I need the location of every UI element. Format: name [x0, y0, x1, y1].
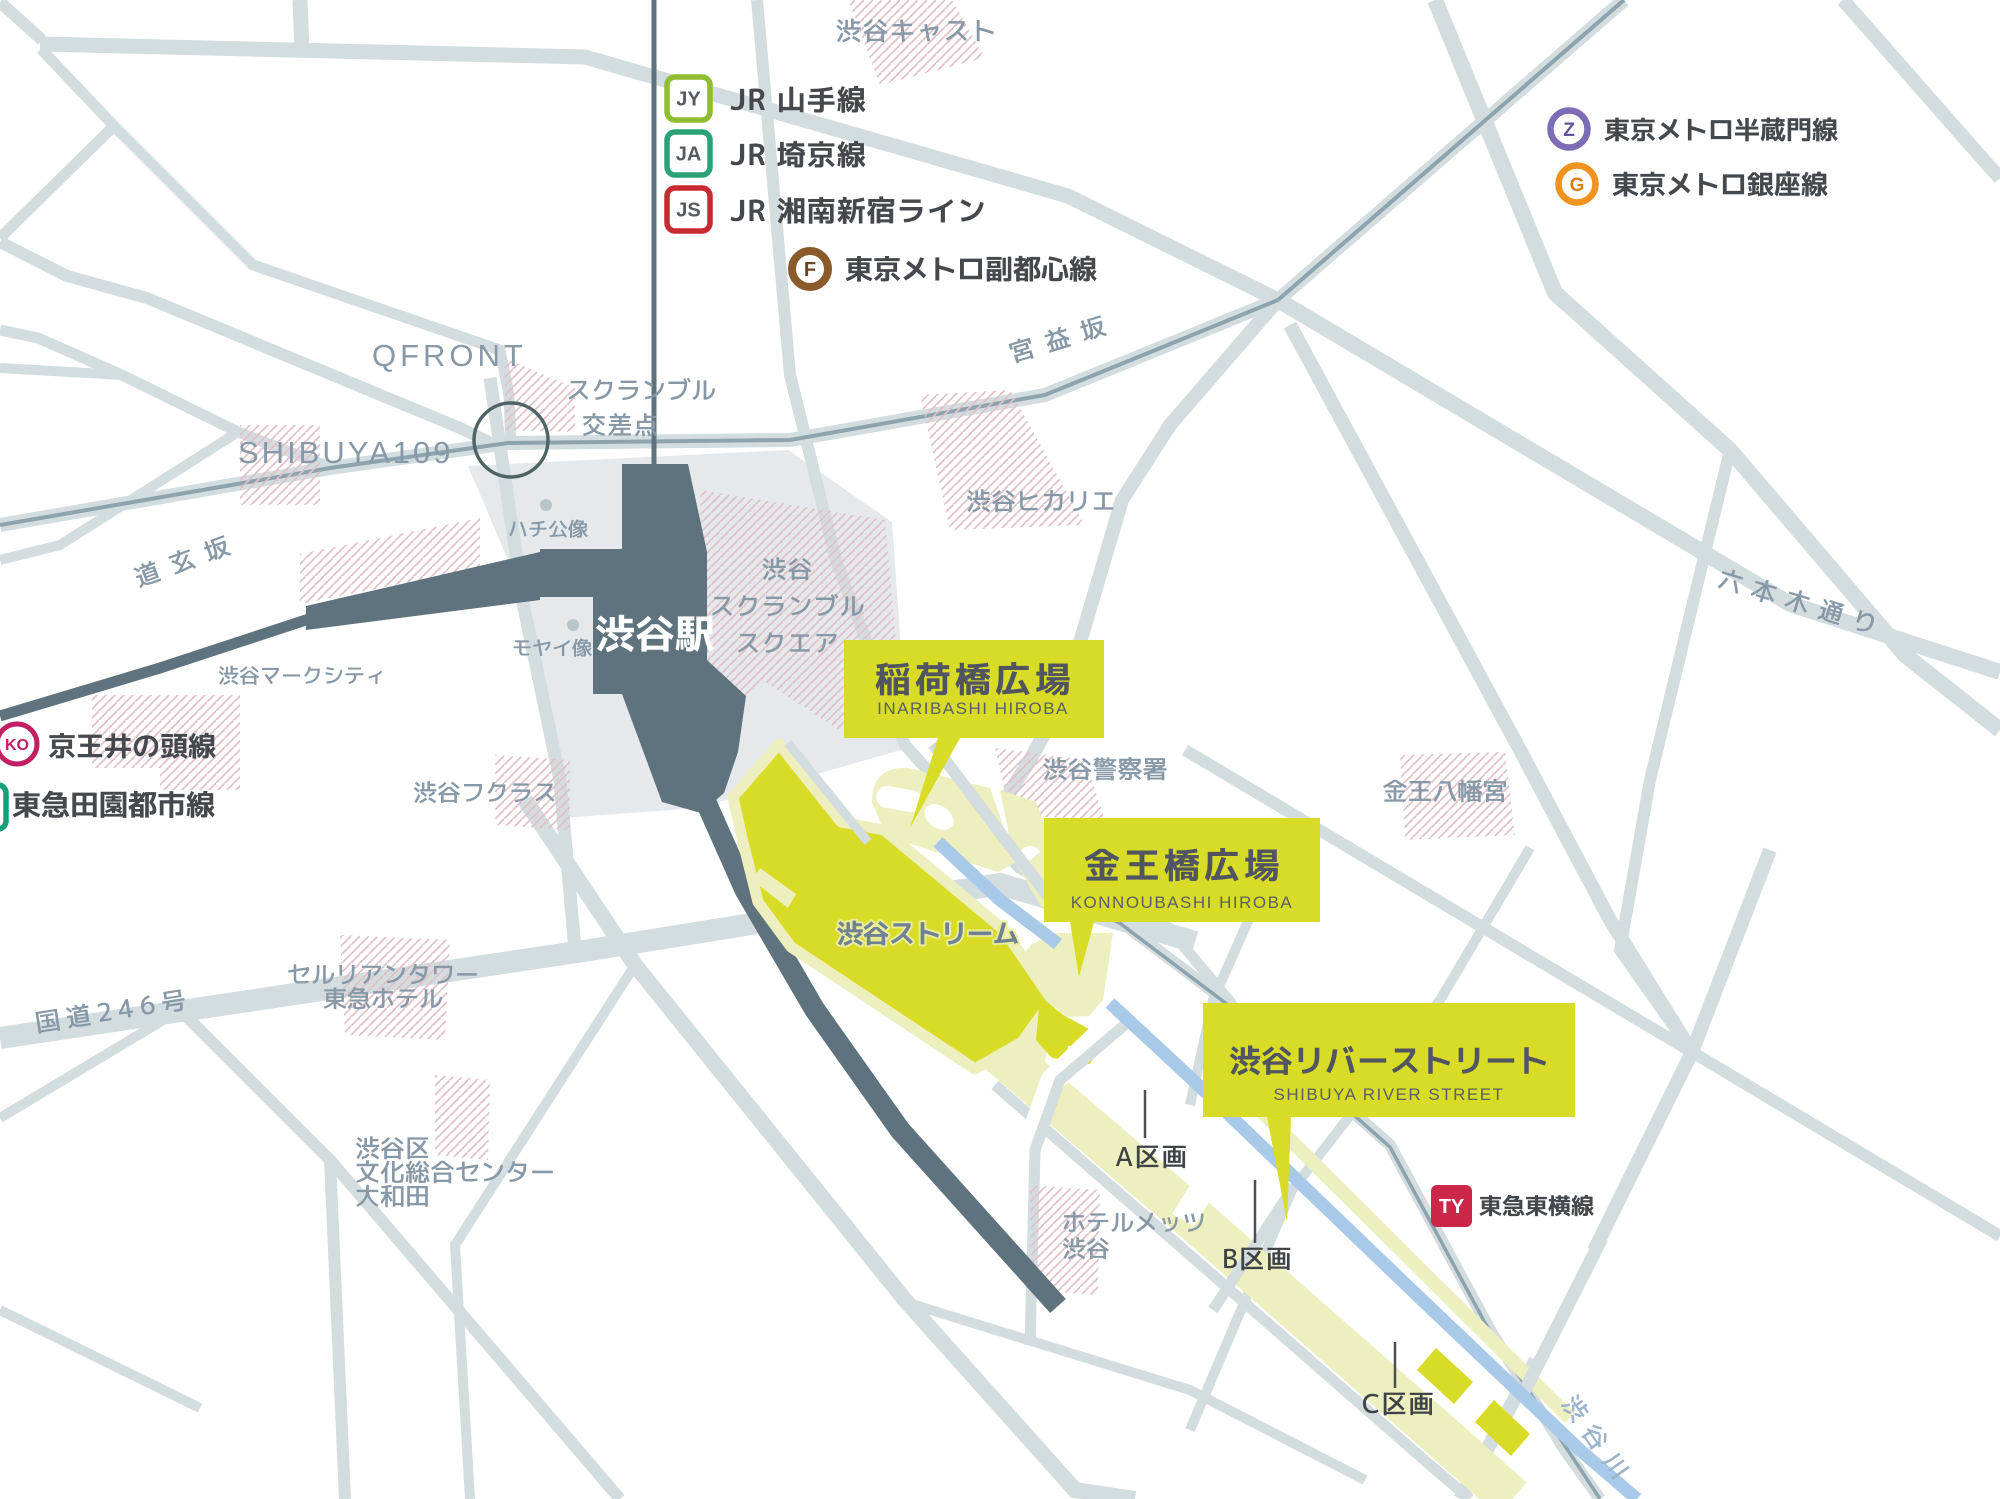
svg-text:INARIBASHI HIROBA: INARIBASHI HIROBA	[877, 699, 1069, 718]
svg-text:JA: JA	[676, 144, 702, 166]
svg-text:QFRONT: QFRONT	[372, 338, 527, 373]
svg-text:SHIBUYA109: SHIBUYA109	[238, 435, 454, 470]
svg-text:F: F	[804, 259, 816, 281]
svg-text:KONNOUBASHI HIROBA: KONNOUBASHI HIROBA	[1071, 893, 1294, 912]
svg-text:TY: TY	[1439, 1196, 1465, 1218]
svg-text:KO: KO	[5, 737, 29, 754]
svg-text:SHIBUYA RIVER STREET: SHIBUYA RIVER STREET	[1274, 1085, 1505, 1104]
svg-text:JS: JS	[676, 200, 700, 222]
svg-text:G: G	[1570, 175, 1585, 196]
svg-text:Z: Z	[1563, 120, 1575, 141]
svg-text:JY: JY	[676, 89, 701, 111]
